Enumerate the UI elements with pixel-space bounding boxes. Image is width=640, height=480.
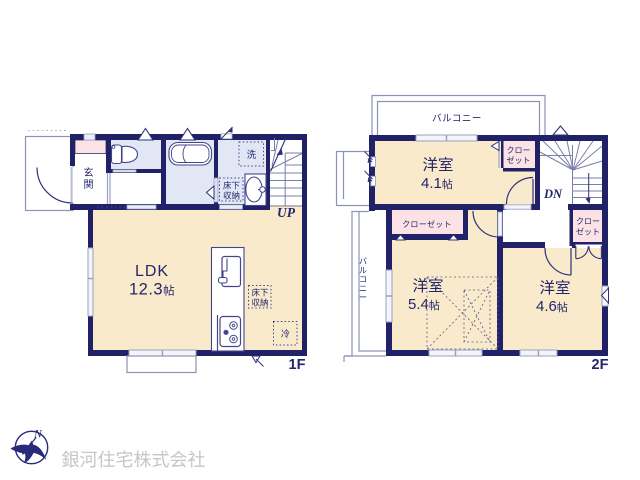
svg-text:冷: 冷 xyxy=(281,328,290,339)
svg-text:床下: 床下 xyxy=(251,288,269,298)
svg-text:バ: バ xyxy=(359,257,367,266)
svg-text:クロー: クロー xyxy=(507,146,531,155)
svg-text:ニ: ニ xyxy=(359,284,367,293)
svg-text:洋室: 洋室 xyxy=(539,279,570,297)
svg-text:2F: 2F xyxy=(592,357,609,373)
svg-text:玄: 玄 xyxy=(84,166,94,179)
svg-text:銀河住宅株式会社: 銀河住宅株式会社 xyxy=(62,450,206,470)
svg-text:ゼット: ゼット xyxy=(507,155,531,165)
svg-text:コ: コ xyxy=(359,275,367,284)
svg-text:クロー: クロー xyxy=(576,217,600,226)
svg-text:ゼット: ゼット xyxy=(576,227,600,237)
svg-text:関: 関 xyxy=(84,179,94,191)
svg-text:洋室: 洋室 xyxy=(422,156,453,174)
svg-text:1F: 1F xyxy=(289,357,306,373)
svg-text:ル: ル xyxy=(359,266,367,275)
svg-text:洋室: 洋室 xyxy=(412,277,443,295)
svg-text:収納: 収納 xyxy=(251,298,268,308)
svg-text:床下: 床下 xyxy=(223,181,241,191)
svg-text:バルコニー: バルコニー xyxy=(432,114,482,125)
svg-text:DN: DN xyxy=(543,187,563,201)
svg-text:クローゼット: クローゼット xyxy=(402,219,452,229)
svg-text:ー: ー xyxy=(359,293,367,302)
svg-text:LDK: LDK xyxy=(135,263,169,280)
svg-text:洗: 洗 xyxy=(247,149,257,161)
svg-text:収納: 収納 xyxy=(223,191,240,201)
svg-text:UP: UP xyxy=(277,205,296,220)
